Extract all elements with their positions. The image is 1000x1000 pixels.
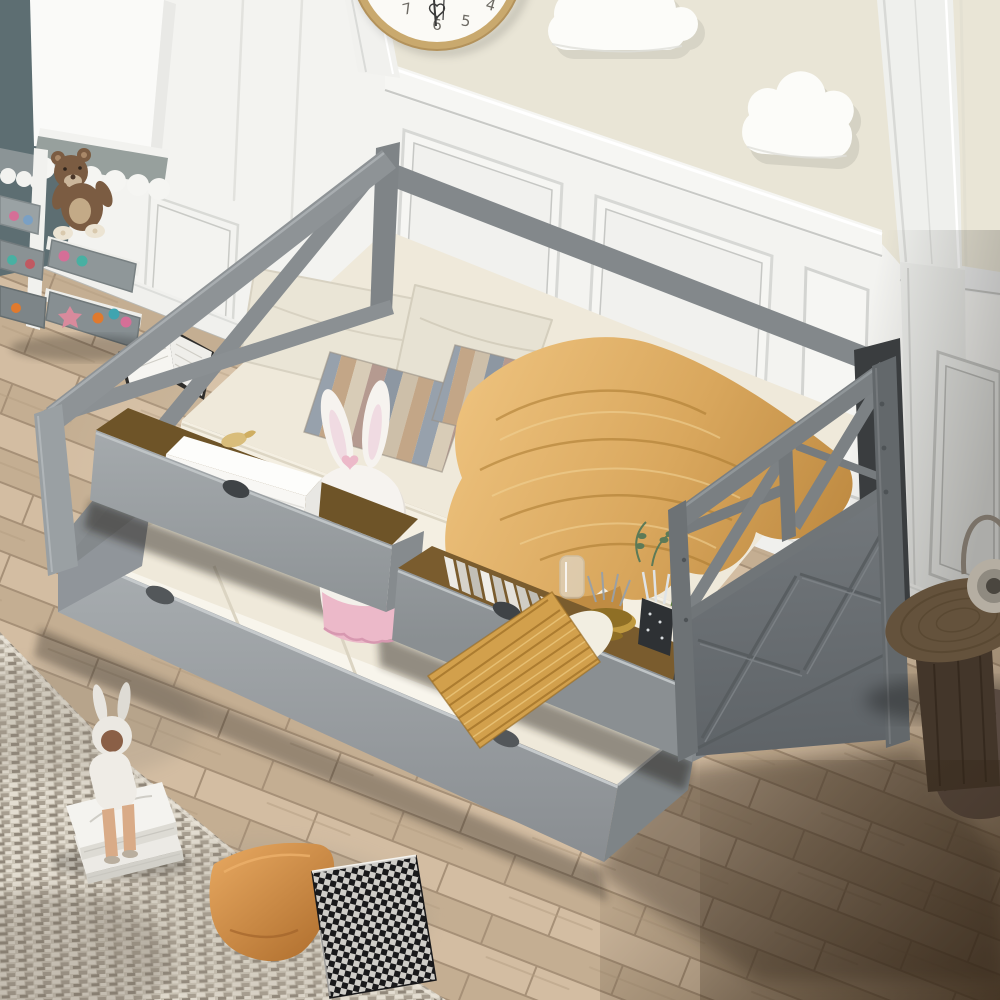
toy-ball [93, 313, 104, 324]
toy-ball [121, 317, 132, 328]
toy-ball [109, 309, 120, 320]
figure-face [101, 730, 123, 752]
room-photo: 7 6 5 4 [0, 0, 1000, 1000]
wall-right-cream-panel [957, 0, 1000, 268]
figure-leg [122, 804, 136, 852]
toy-bins-far-left [0, 196, 46, 328]
scene-svg: 7 6 5 4 [0, 0, 1000, 1000]
glass-jar [560, 556, 584, 598]
cloud-decoration-left [548, 0, 705, 59]
vignette [700, 760, 1000, 1000]
toy-ball [77, 256, 88, 267]
toy-ball [59, 251, 70, 262]
checkered-pillow [312, 856, 436, 998]
